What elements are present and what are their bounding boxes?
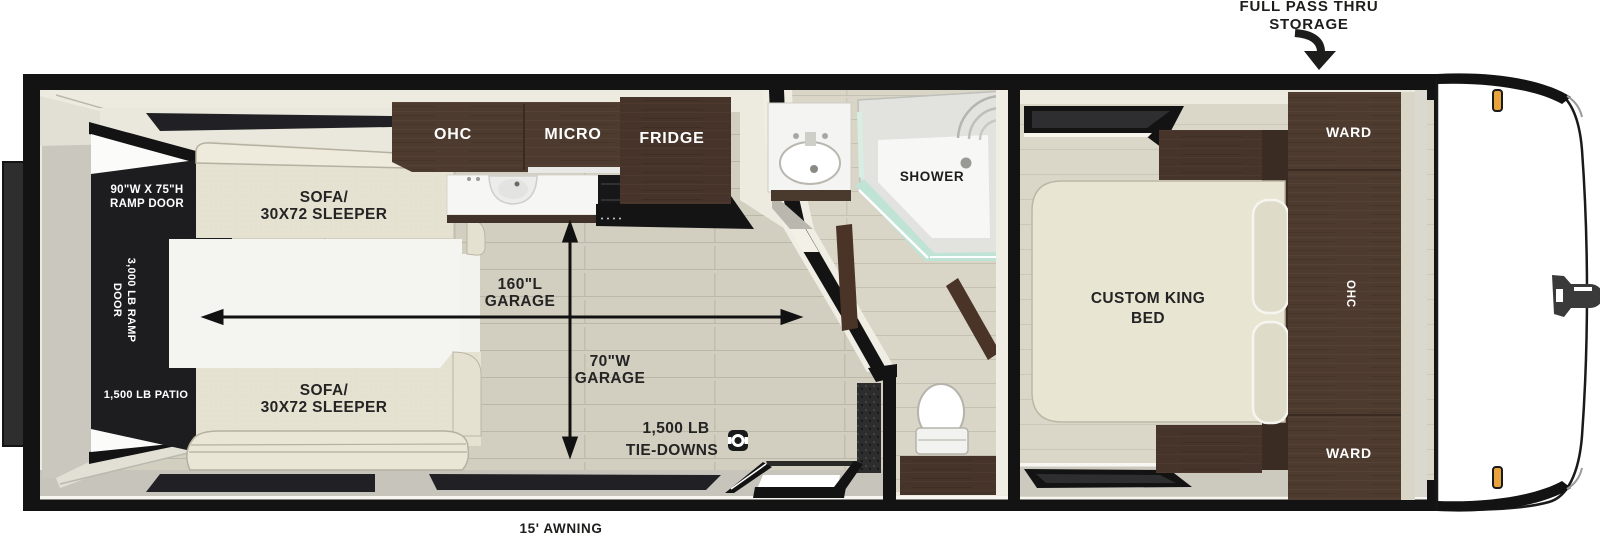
svg-text:15' AWNING: 15' AWNING [520, 521, 603, 536]
svg-text:RAMP DOOR: RAMP DOOR [110, 198, 184, 210]
svg-text:BED: BED [1131, 310, 1165, 327]
svg-text:WARD: WARD [1326, 124, 1372, 140]
svg-text:WARD: WARD [1326, 445, 1372, 461]
svg-text:OHC: OHC [434, 126, 472, 143]
svg-text:SOFA/: SOFA/ [300, 382, 349, 399]
svg-text:TIE-DOWNS: TIE-DOWNS [626, 442, 718, 459]
svg-text:70"W: 70"W [590, 353, 631, 370]
svg-text:160"L: 160"L [498, 276, 543, 293]
svg-text:GARAGE: GARAGE [485, 293, 555, 310]
svg-text:FRIDGE: FRIDGE [639, 130, 704, 147]
svg-text:SHOWER: SHOWER [900, 169, 964, 184]
svg-text:SOFA/: SOFA/ [300, 189, 349, 206]
svg-text:90"W X 75"H: 90"W X 75"H [110, 184, 183, 196]
svg-text:3,000 LB RAMP: 3,000 LB RAMP [125, 258, 137, 343]
svg-text:MICRO: MICRO [544, 126, 601, 143]
svg-text:OHC: OHC [1344, 280, 1356, 308]
svg-text:30X72 SLEEPER: 30X72 SLEEPER [261, 399, 388, 416]
svg-text:GARAGE: GARAGE [575, 370, 645, 387]
svg-text:CUSTOM KING: CUSTOM KING [1091, 290, 1205, 307]
svg-text:1,500 LB PATIO: 1,500 LB PATIO [104, 389, 189, 401]
svg-text:30X72 SLEEPER: 30X72 SLEEPER [261, 206, 388, 223]
svg-text:STORAGE: STORAGE [1269, 16, 1349, 33]
svg-text:DOOR: DOOR [111, 283, 123, 317]
svg-text:1,500 LB: 1,500 LB [643, 420, 710, 437]
svg-text:FULL PASS THRU: FULL PASS THRU [1240, 0, 1379, 15]
